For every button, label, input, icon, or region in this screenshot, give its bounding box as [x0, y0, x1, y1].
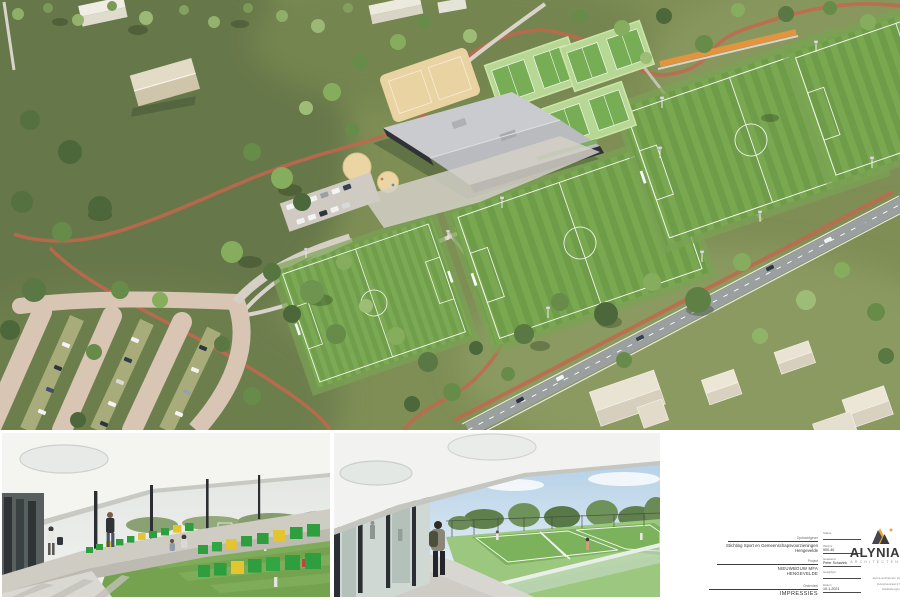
- client-label: Opdrachtgever: [728, 537, 818, 540]
- part-name: IMPRESSIES: [710, 591, 818, 598]
- architect-address: alynia architecten bv Industriestraat 27…: [820, 576, 900, 593]
- photo1-skylight: [20, 445, 108, 473]
- render-terrace-tennis: [334, 433, 660, 597]
- titleblock: Opdrachtgever Stichting Sport en Gemeens…: [705, 524, 900, 600]
- project-label: Project: [717, 560, 818, 563]
- photo2-skylight-2: [448, 434, 536, 460]
- client-name: Stichting Sport en Gemeenschapsvoorzieni…: [710, 543, 818, 554]
- aerial-site-render: [0, 0, 900, 430]
- grandstand-walkway-svg: [2, 433, 330, 597]
- project-name: NIEUWBOUW MFA HENGEVELDE: [710, 566, 818, 577]
- alynia-logo: ALYNIA ARCHITECTEN: [838, 526, 900, 564]
- alynia-mountain-icon: [866, 526, 896, 546]
- terrace-tennis-svg: [334, 433, 660, 597]
- project-rule: [717, 564, 818, 565]
- photo2-skylight-1: [340, 461, 412, 485]
- logo-subtitle: ARCHITECTEN: [838, 560, 900, 564]
- render-grandstand-walkway: [2, 433, 330, 597]
- presentation-sheet: Opdrachtgever Stichting Sport en Gemeens…: [0, 0, 900, 600]
- logo-wordmark: ALYNIA: [838, 546, 900, 559]
- part-label: Onderdeel: [709, 585, 818, 588]
